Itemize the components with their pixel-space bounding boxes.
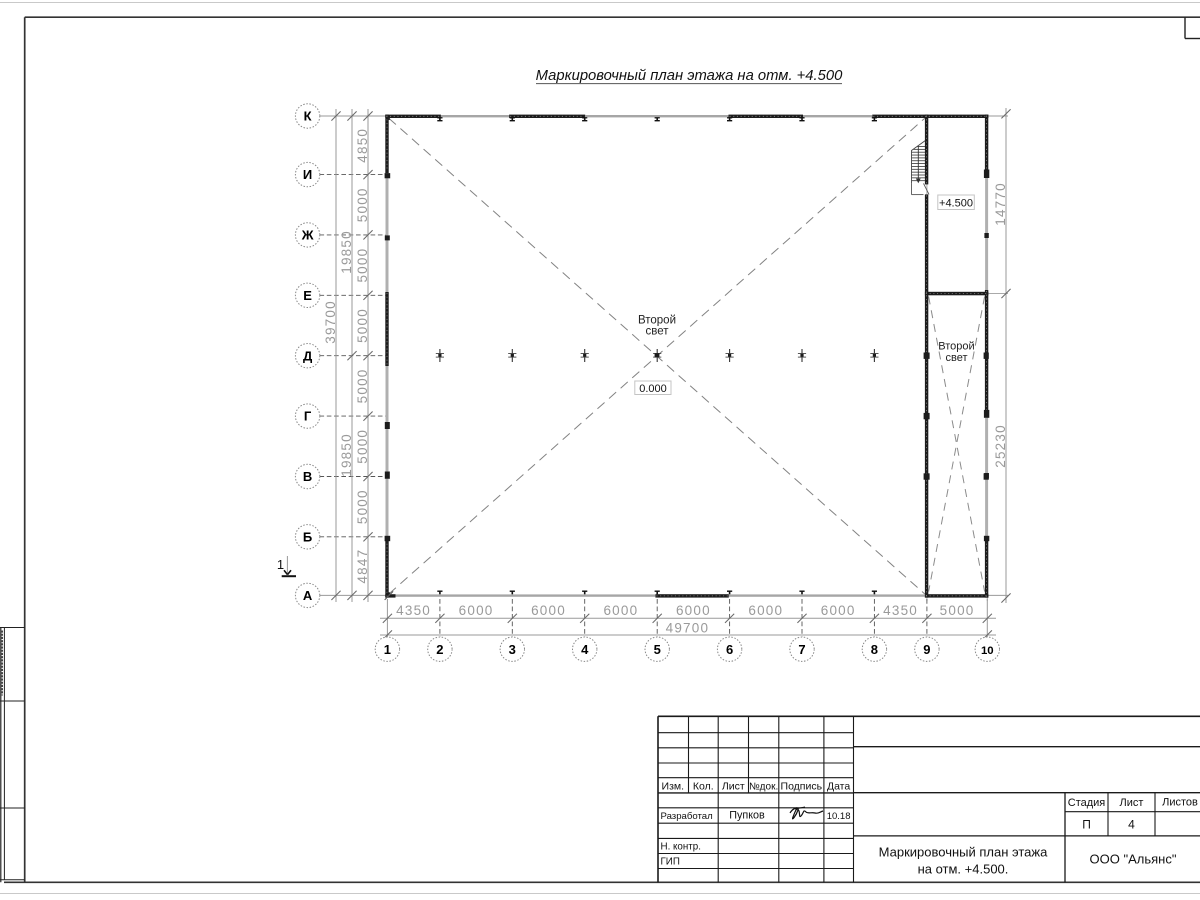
svg-text:4: 4 [581,642,589,657]
svg-text:Д: Д [303,348,313,363]
svg-text:7: 7 [798,642,805,657]
svg-text:Изм.: Изм. [662,780,685,792]
svg-text:Лист: Лист [722,780,745,792]
svg-text:5: 5 [654,642,661,657]
svg-text:Разработал: Разработал [661,811,713,822]
svg-text:2: 2 [436,642,443,657]
svg-text:6000: 6000 [748,603,783,618]
svg-text:6000: 6000 [531,603,566,618]
svg-text:К: К [304,109,312,124]
svg-text:П: П [1082,818,1091,832]
svg-text:10: 10 [981,645,994,657]
svg-text:6000: 6000 [459,603,494,618]
svg-text:5000: 5000 [355,429,370,464]
svg-text:Дата: Дата [827,780,850,792]
svg-text:5000: 5000 [355,187,370,222]
svg-text:0.000: 0.000 [639,383,667,395]
svg-text:4847: 4847 [355,549,370,584]
svg-text:Е: Е [303,288,312,303]
svg-text:на отм. +4.500.: на отм. +4.500. [918,862,1009,877]
svg-text:6000: 6000 [603,603,638,618]
svg-text:ГИП: ГИП [661,857,680,868]
svg-text:Маркировочный план этажа: Маркировочный план этажа [879,845,1048,860]
svg-text:Ж: Ж [301,228,314,243]
svg-text:4850: 4850 [355,128,370,163]
svg-text:5000: 5000 [355,308,370,343]
svg-text:4350: 4350 [883,603,918,618]
svg-text:Лист: Лист [1120,797,1144,809]
svg-text:39700: 39700 [323,300,338,344]
svg-text:Листов: Листов [1162,797,1198,809]
svg-text:Подпись: Подпись [781,780,823,792]
svg-text:+4.500: +4.500 [939,197,973,209]
svg-text:4: 4 [1128,818,1135,832]
svg-text:свет: свет [945,352,967,364]
svg-text:Второй: Второй [938,340,974,352]
svg-text:1: 1 [277,557,284,572]
svg-text:5000: 5000 [355,248,370,283]
svg-text:49700: 49700 [666,621,710,636]
svg-text:А: А [303,588,313,603]
svg-text:6000: 6000 [821,603,856,618]
svg-text:5000: 5000 [355,368,370,403]
svg-text:И: И [303,167,312,182]
svg-text:Пупков: Пупков [729,810,765,822]
svg-text:1: 1 [384,642,391,657]
svg-text:Маркировочный план этажа на от: Маркировочный план этажа на отм. +4.500 [536,68,843,84]
svg-text:3: 3 [509,642,516,657]
svg-text:Б: Б [303,529,312,544]
svg-text:14770: 14770 [993,182,1008,226]
svg-text:свет: свет [645,325,669,337]
svg-text:19850: 19850 [339,230,354,274]
svg-text:5000: 5000 [355,489,370,524]
svg-text:8: 8 [871,642,878,657]
svg-text:4350: 4350 [396,603,431,618]
svg-text:В: В [303,469,312,484]
svg-text:25230: 25230 [993,424,1008,468]
svg-text:10.18: 10.18 [827,811,851,822]
svg-text:Н. контр.: Н. контр. [661,842,701,853]
svg-text:ООО "Альянс": ООО "Альянс" [1090,852,1177,867]
svg-text:Кол.: Кол. [693,780,714,792]
svg-text:5000: 5000 [940,603,975,618]
svg-text:19850: 19850 [339,433,354,477]
svg-text:Г: Г [304,409,312,424]
svg-text:№док.: №док. [749,781,778,792]
svg-text:Стадия: Стадия [1068,797,1106,809]
svg-text:9: 9 [923,642,930,657]
svg-text:6: 6 [726,642,733,657]
svg-text:6000: 6000 [676,603,711,618]
